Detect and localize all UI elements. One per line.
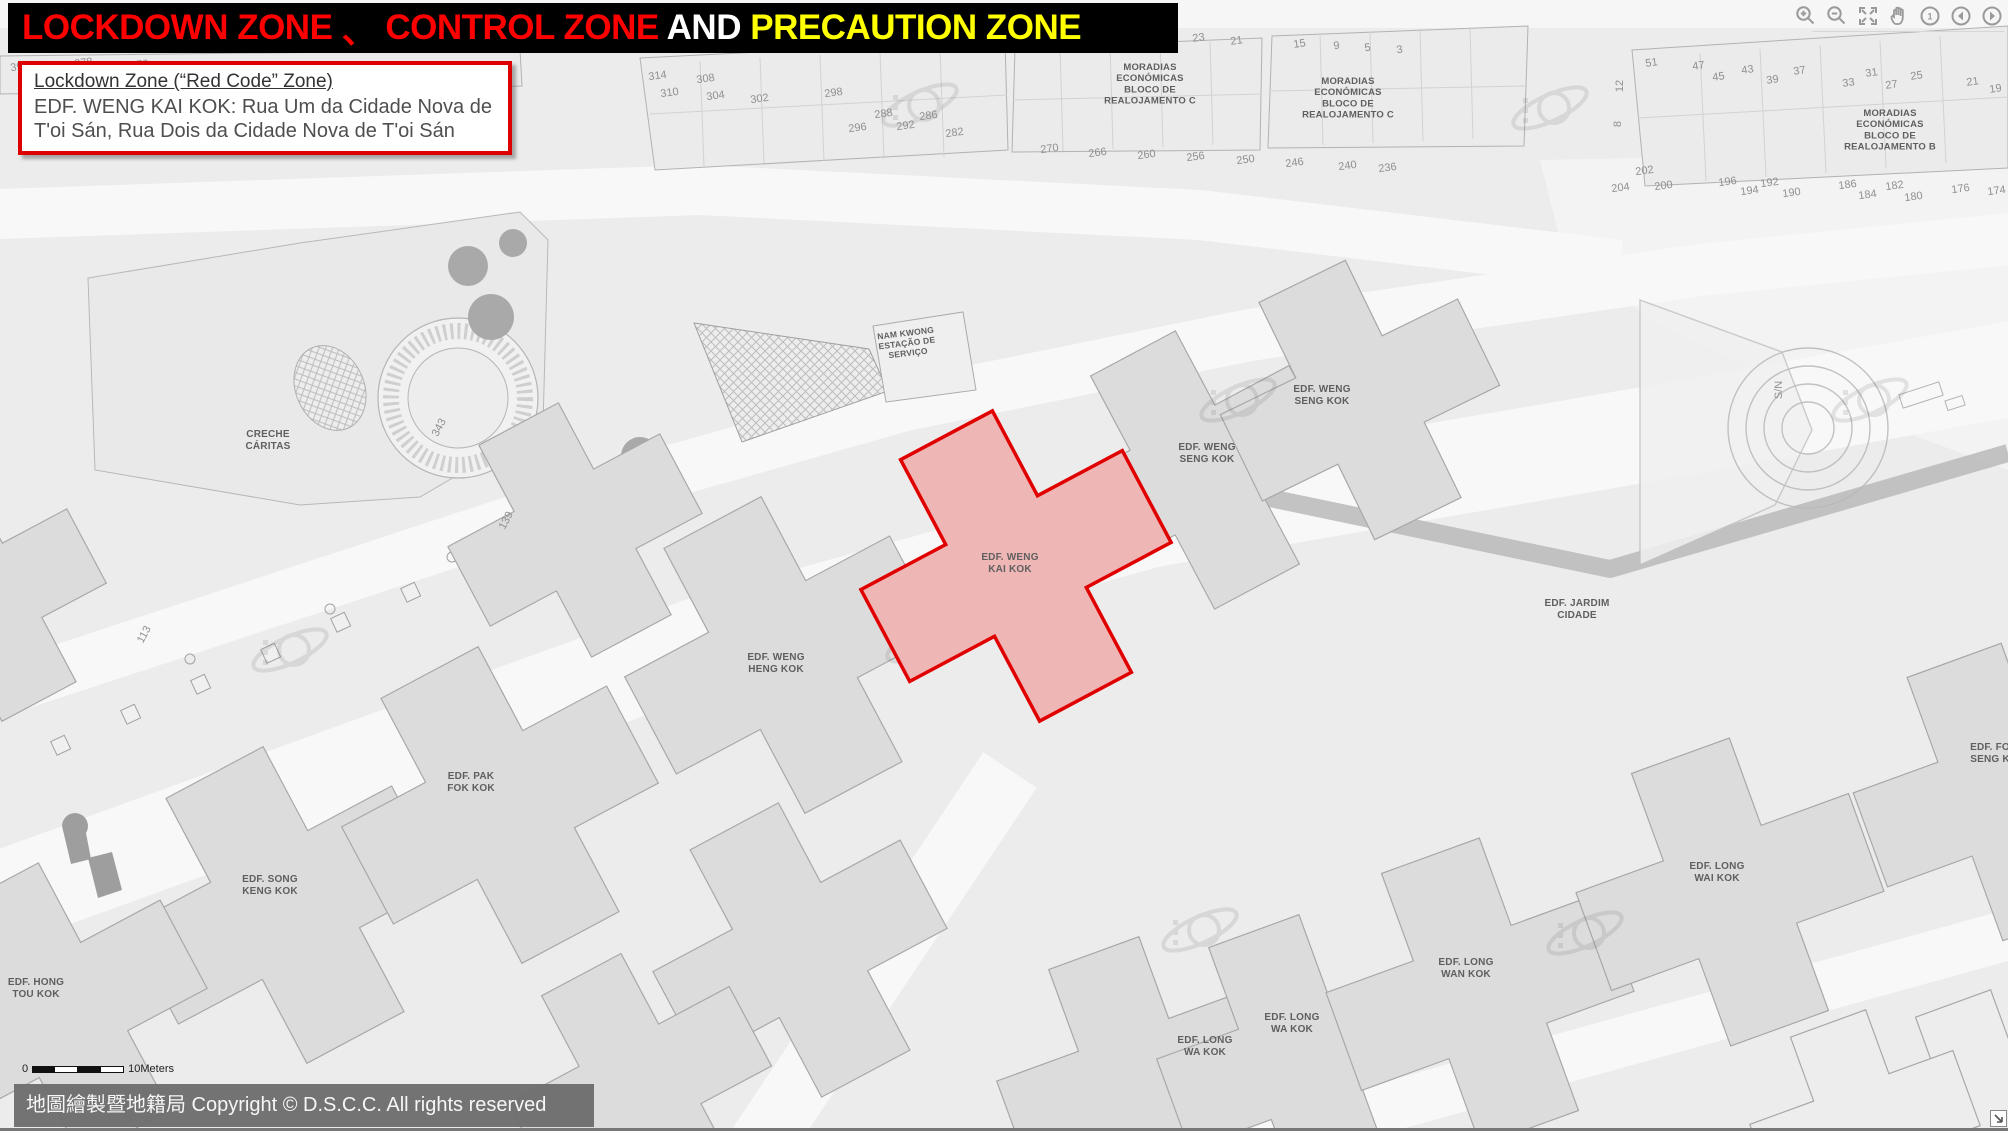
house-number: 184 [1858, 188, 1878, 202]
scale-segment [32, 1066, 55, 1073]
house-number: 240 [1338, 159, 1358, 173]
house-number: 176 [1951, 182, 1971, 196]
house-number: 304 [706, 89, 726, 103]
scale-segment [101, 1066, 124, 1073]
house-number: 8 [1612, 121, 1624, 127]
map-label-long-wa-kok-2: EDF. LONGWA KOK [1177, 1035, 1232, 1058]
house-number: 202 [1635, 164, 1655, 178]
house-number: 12 [1614, 80, 1626, 92]
house-number: 180 [1904, 190, 1924, 204]
map-label-weng-heng-kok: EDF. WENGHENG KOK [747, 652, 804, 675]
map-label-long-wai-kok: EDF. LONGWAI KOK [1689, 861, 1744, 884]
house-number: 270 [1040, 142, 1060, 156]
zoom-in-icon[interactable] [1794, 4, 1818, 28]
house-number: 256 [1186, 150, 1206, 164]
house-number: 204 [1611, 181, 1631, 195]
house-number: 31 [1865, 66, 1879, 80]
house-number: 314 [648, 69, 668, 83]
previous-extent-icon[interactable] [1949, 4, 1973, 28]
map-label-pak-fok-kok: EDF. PAKFOK KOK [447, 771, 495, 794]
svg-text:1: 1 [1927, 12, 1932, 22]
map-label-song-keng-kok: EDF. SONGKENG KOK [242, 874, 298, 897]
house-number: 45 [1712, 70, 1726, 84]
building-footprint [342, 647, 659, 964]
info-box-body: EDF. WENG KAI KOK: Rua Um da Cidade Nova… [34, 95, 496, 143]
page-title: LOCKDOWN ZONE 、 CONTROL ZONE AND PRECAUT… [8, 3, 1178, 53]
map-label-weng-kai-kok: EDF. WENGKAI KOK [981, 552, 1038, 575]
next-extent-icon[interactable] [1980, 4, 2004, 28]
house-number: 19 [1989, 82, 2003, 96]
house-number: 286 [919, 109, 939, 123]
copyright-bar: 地圖繪製暨地籍局 Copyright © D.S.C.C. All rights… [14, 1084, 594, 1127]
map-label-long-wa-kok-1: EDF. LONGWA KOK [1264, 1012, 1319, 1035]
house-number: 21 [1230, 34, 1244, 48]
scale-bar: 0 10Meters [18, 1063, 178, 1075]
banner-segment: 、 [332, 3, 385, 54]
scale-segment [78, 1066, 101, 1073]
map-label-creche-caritas: CRECHECÁRITAS [245, 429, 290, 452]
map-label-hong-tou-kok: EDF. HONGTOU KOK [8, 977, 64, 1000]
banner-segment: AND [659, 8, 750, 48]
scale-end: 10Meters [128, 1063, 174, 1075]
toolbar-separator [1812, 31, 2004, 32]
map-label-fo-seng-kok: EDF. FOSENG K [1970, 742, 2008, 765]
lockdown-info-box: Lockdown Zone (“Red Code” Zone) EDF. WEN… [18, 61, 512, 155]
house-number: 15 [1293, 37, 1307, 51]
house-number: 246 [1285, 156, 1305, 170]
house-number: 27 [1885, 78, 1899, 92]
house-number: 298 [824, 86, 844, 100]
building-footprint [448, 403, 702, 657]
house-number: 282 [945, 126, 965, 140]
house-number: 292 [896, 119, 916, 133]
house-number: 190 [1782, 186, 1802, 200]
house-number: 182 [1885, 179, 1905, 193]
map-label-weng-seng-kok-2: EDF. WENGSENG KOK [1178, 442, 1235, 465]
banner-segment: LOCKDOWN ZONE [22, 8, 332, 48]
house-number: 308 [696, 72, 716, 86]
map-toolbar: 1 [1794, 4, 2004, 28]
banner-segment: PRECAUTION ZONE [750, 8, 1081, 48]
house-number: 37 [1793, 64, 1807, 78]
house-number: 266 [1088, 146, 1108, 160]
house-number: 200 [1654, 179, 1674, 193]
house-number: S/N [1773, 381, 1785, 399]
house-number: 288 [874, 107, 894, 121]
house-number: 196 [1718, 175, 1738, 189]
map-application: EDF. WENGKAI KOKCRECHECÁRITASNAM KWONGES… [0, 0, 2008, 1131]
house-number: 194 [1740, 184, 1760, 198]
house-number: 43 [1741, 63, 1755, 77]
scale-segment [55, 1066, 78, 1073]
house-number: 186 [1838, 178, 1858, 192]
house-number: 21 [1966, 75, 1980, 89]
map-label-weng-seng-kok-1: EDF. WENGSENG KOK [1293, 384, 1350, 407]
map-label-long-wan-kok: EDF. LONGWAN KOK [1438, 957, 1493, 980]
pan-hand-icon[interactable] [1887, 4, 1911, 28]
zoom-out-icon[interactable] [1825, 4, 1849, 28]
resize-handle-icon[interactable] [1990, 1110, 2007, 1127]
house-number: 296 [848, 121, 868, 135]
house-number: 47 [1692, 59, 1706, 73]
house-number: 23 [1192, 31, 1206, 45]
banner-segment: CONTROL ZONE [385, 8, 658, 48]
house-number: 192 [1760, 176, 1780, 190]
house-number: 260 [1137, 148, 1157, 162]
house-number: 302 [750, 92, 770, 106]
house-number: 250 [1236, 153, 1256, 167]
map-canvas[interactable]: EDF. WENGKAI KOKCRECHECÁRITASNAM KWONGES… [0, 0, 2008, 1131]
house-number: 25 [1910, 69, 1924, 83]
house-number: 236 [1378, 161, 1398, 175]
house-number: 310 [660, 86, 680, 100]
house-number: 39 [1766, 73, 1780, 87]
full-extent-icon[interactable] [1856, 4, 1880, 28]
house-number: 33 [1842, 76, 1856, 90]
house-number: 174 [1987, 184, 2007, 198]
house-number: 51 [1645, 56, 1659, 70]
scale-start: 0 [22, 1063, 28, 1075]
info-box-title: Lockdown Zone (“Red Code” Zone) [34, 71, 496, 93]
initial-view-icon[interactable]: 1 [1918, 4, 1942, 28]
